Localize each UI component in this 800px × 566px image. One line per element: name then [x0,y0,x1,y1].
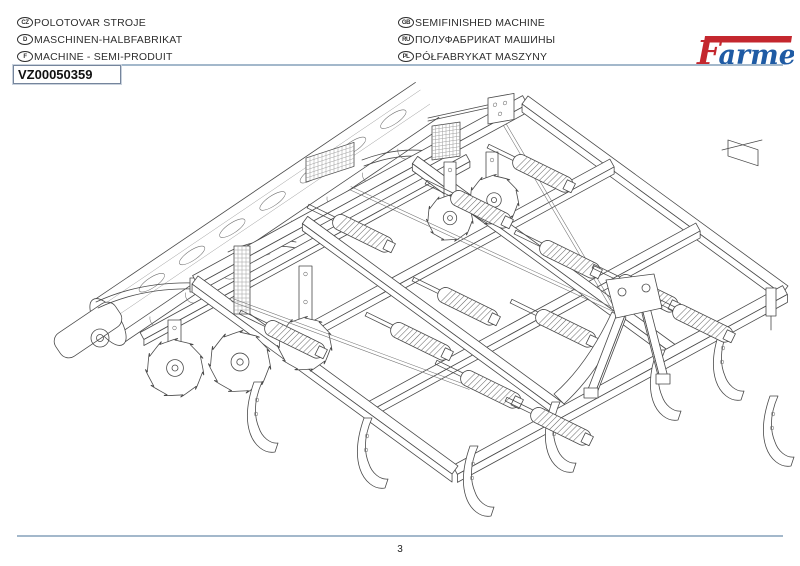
machine-figure [0,80,800,530]
lang-label-pl: PÓŁFABRYKAT MASZYNY [414,51,547,63]
lang-label-ru: ПОЛУФАБРИКАТ МАШИНЫ [414,34,555,46]
page-number: 3 [0,544,800,555]
footer-rule [17,535,783,537]
lang-code-ru: RU [398,34,414,45]
lang-label-gb: SEMIFINISHED MACHINE [414,17,545,29]
lang-label-cz: POLOTOVAR STROJE [33,17,146,29]
lang-row-cz: CZ POLOTOVAR STROJE [17,14,182,31]
language-labels-right: GB SEMIFINISHED MACHINE RU ПОЛУФАБРИКАТ … [398,14,555,65]
farmet-logo: Farmet [692,28,794,68]
lang-row-fr: F MACHINE - SEMI-PRODUIT [17,48,182,65]
catalog-page: CZ POLOTOVAR STROJE D MASCHINEN-HALBFABR… [0,0,800,566]
lang-code-pl: PL [398,51,414,62]
lang-label-de: MASCHINEN-HALBFABRIKAT [33,34,182,46]
lang-row-pl: PL PÓŁFABRYKAT MASZYNY [398,48,555,65]
language-labels-left: CZ POLOTOVAR STROJE D MASCHINEN-HALBFABR… [17,14,182,65]
lang-row-de: D MASCHINEN-HALBFABRIKAT [17,31,182,48]
lang-code-fr: F [17,51,33,62]
lang-code-cz: CZ [17,17,33,28]
lang-code-gb: GB [398,17,414,28]
chisel-tines [247,330,794,516]
lang-row-gb: GB SEMIFINISHED MACHINE [398,14,555,31]
lang-code-de: D [17,34,33,45]
header-rule [17,64,783,66]
lang-row-ru: RU ПОЛУФАБРИКАТ МАШИНЫ [398,31,555,48]
lang-label-fr: MACHINE - SEMI-PRODUIT [33,51,173,63]
